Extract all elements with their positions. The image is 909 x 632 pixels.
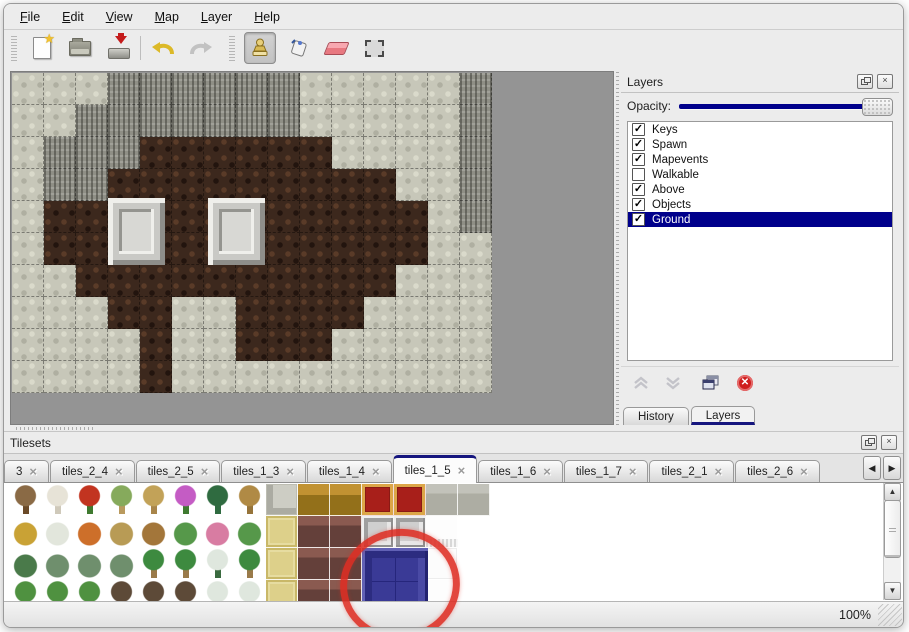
map-tile <box>108 137 140 169</box>
map-tile <box>332 73 364 105</box>
palette-tile-whitebranch[interactable] <box>42 484 74 516</box>
menu-item-file[interactable]: File <box>10 7 50 27</box>
map-tile <box>300 73 332 105</box>
tileset-tab-label: tiles_1_5 <box>405 465 451 477</box>
map-tile <box>268 297 300 329</box>
map-tile <box>12 137 44 169</box>
opacity-slider-groove <box>679 104 889 109</box>
palette-tile-whitefringe[interactable] <box>426 516 458 548</box>
menu-item-map[interactable]: Map <box>145 7 189 27</box>
tileset-scrollbar[interactable]: ▲ ▼ <box>883 483 901 600</box>
layer-list: ✓Keys✓Spawn✓MapeventsWalkable✓Above✓Obje… <box>627 121 893 361</box>
palette-tile-carpet[interactable] <box>362 484 394 516</box>
map-tile <box>300 361 332 393</box>
layer-row-above[interactable]: ✓Above <box>628 182 892 197</box>
close-panel-icon[interactable]: × <box>877 74 893 89</box>
redo-button[interactable] <box>185 32 217 64</box>
map-tile <box>236 169 268 201</box>
close-tab-icon[interactable]: × <box>372 467 380 477</box>
map-tile <box>428 105 460 137</box>
map-tile <box>204 297 236 329</box>
map-tile <box>172 73 204 105</box>
map-tile <box>460 201 492 233</box>
map-tile <box>460 137 492 169</box>
palette-tile-woodmaroon[interactable] <box>330 516 362 548</box>
menu-bar: FileEditViewMapLayerHelp <box>4 4 903 30</box>
map-tile <box>172 297 204 329</box>
map-tile <box>460 73 492 105</box>
map-tile <box>140 265 172 297</box>
map-tile <box>236 297 268 329</box>
map-tile <box>204 329 236 361</box>
new-file-icon: ★ <box>33 37 51 59</box>
toolbar-separator <box>140 36 141 60</box>
map-tile <box>396 73 428 105</box>
map-tile <box>140 297 172 329</box>
map-tile <box>236 73 268 105</box>
close-tab-icon[interactable]: × <box>458 466 466 476</box>
tileset-tab-tiles_1_4[interactable]: tiles_1_4× <box>307 460 392 482</box>
map-tile <box>12 169 44 201</box>
tileset-tab-label: tiles_1_7 <box>576 466 622 478</box>
map-tile <box>396 137 428 169</box>
map-tile <box>76 201 108 233</box>
duplicate-layer-icon[interactable] <box>701 374 721 392</box>
map-tile <box>300 265 332 297</box>
map-tile <box>76 233 108 265</box>
close-tab-icon[interactable]: × <box>286 467 294 477</box>
tileset-tab-label: tiles_2_4 <box>62 466 108 478</box>
map-tile <box>364 73 396 105</box>
map-tile <box>108 297 140 329</box>
layer-checkbox[interactable]: ✓ <box>632 198 645 211</box>
map-tile <box>300 137 332 169</box>
opacity-slider-handle[interactable] <box>862 98 893 116</box>
map-tile <box>332 329 364 361</box>
palette-tile-empty[interactable] <box>458 548 490 580</box>
status-bar: 100% <box>4 601 903 627</box>
delete-layer-icon[interactable]: ✕ <box>737 375 753 391</box>
palette-tile-stonegray[interactable] <box>458 484 490 516</box>
palette-tile-deadtree[interactable] <box>10 484 42 516</box>
map-tile <box>428 265 460 297</box>
palette-tile-snowpine[interactable] <box>202 548 234 580</box>
stamp-tool-button[interactable] <box>244 32 276 64</box>
map-tile <box>396 329 428 361</box>
map-tile <box>44 201 76 233</box>
palette-tile-whitetall[interactable] <box>426 548 458 580</box>
layer-row-ground[interactable]: ✓Ground <box>628 212 892 227</box>
map-tile <box>44 329 76 361</box>
layer-row-mapevents[interactable]: ✓Mapevents <box>628 152 892 167</box>
map-tile <box>236 329 268 361</box>
map-tile <box>460 233 492 265</box>
map-tile <box>204 265 236 297</box>
palette-tile-orangeflower[interactable] <box>74 516 106 548</box>
map-tile <box>396 265 428 297</box>
map-tile <box>172 329 204 361</box>
palette-tile-drygrass[interactable] <box>106 516 138 548</box>
palette-tile-stonepave[interactable] <box>266 484 298 516</box>
save-button[interactable] <box>102 32 134 64</box>
resize-grip[interactable] <box>878 604 902 626</box>
map-tile <box>76 297 108 329</box>
layer-label: Objects <box>652 199 691 211</box>
tileset-tab-label: tiles_1_3 <box>233 466 279 478</box>
layers-dock: Layers × Opacity: ✓Keys✓Spawn✓MapeventsW… <box>621 71 899 425</box>
tileset-tab-label: tiles_2_6 <box>747 466 793 478</box>
map-tile <box>204 169 236 201</box>
map-tile <box>172 137 204 169</box>
dock-tab-layers[interactable]: Layers <box>691 406 756 425</box>
map-tile <box>76 361 108 393</box>
palette-tile-redflower[interactable] <box>74 484 106 516</box>
palette-tile-palm[interactable] <box>170 548 202 580</box>
palette-tile-silver[interactable] <box>394 516 426 548</box>
map-tile <box>108 329 140 361</box>
map-tile <box>268 169 300 201</box>
tileset-tab-label: tiles_1_6 <box>490 466 536 478</box>
close-tab-icon[interactable]: × <box>115 467 123 477</box>
tileset-tab-bar: 3×tiles_2_4×tiles_2_5×tiles_1_3×tiles_1_… <box>4 454 903 483</box>
palette-tile-fern[interactable] <box>202 484 234 516</box>
tileset-tab-tiles_1_6[interactable]: tiles_1_6× <box>478 460 563 482</box>
palette-tile-hay[interactable] <box>10 516 42 548</box>
map-tile <box>140 361 172 393</box>
layer-label: Walkable <box>652 169 699 181</box>
tab-scroll-buttons: ◀▶ <box>863 456 903 482</box>
map-tile <box>428 361 460 393</box>
map-tile <box>460 297 492 329</box>
tilesets-title: Tilesets <box>10 436 857 450</box>
dock-tabs: HistoryLayers <box>621 399 899 425</box>
palette-tile-silver[interactable] <box>362 516 394 548</box>
map-tile <box>76 73 108 105</box>
map-tile <box>396 361 428 393</box>
close-tab-icon[interactable]: × <box>715 467 723 477</box>
tileset-tab-label: tiles_2_1 <box>661 466 707 478</box>
map-tile <box>140 169 172 201</box>
map-tile <box>268 233 300 265</box>
map-tile <box>332 233 364 265</box>
map-tile <box>172 105 204 137</box>
tileset-tab-label: tiles_1_4 <box>319 466 365 478</box>
map-tile <box>236 265 268 297</box>
map-tile <box>364 169 396 201</box>
map-tile <box>12 201 44 233</box>
palette-tile-woodgold[interactable] <box>298 484 330 516</box>
map-tile <box>332 137 364 169</box>
map-tile <box>460 169 492 201</box>
scrollbar-thumb[interactable] <box>884 500 901 558</box>
tileset-tab-tiles_1_7[interactable]: tiles_1_7× <box>564 460 649 482</box>
scroll-up-icon[interactable]: ▲ <box>884 483 901 501</box>
layer-checkbox[interactable] <box>632 168 645 181</box>
move-layer-down-icon[interactable] <box>663 375 683 391</box>
map-tile <box>44 137 76 169</box>
map-tile <box>12 73 44 105</box>
map-tile <box>12 329 44 361</box>
palette-tile-brownplant[interactable] <box>234 484 266 516</box>
map-tile <box>428 201 460 233</box>
pedestal-tile <box>208 198 265 265</box>
layer-row-keys[interactable]: ✓Keys <box>628 122 892 137</box>
layer-checkbox[interactable]: ✓ <box>632 153 645 166</box>
layer-row-objects[interactable]: ✓Objects <box>628 197 892 212</box>
layer-row-walkable[interactable]: Walkable <box>628 167 892 182</box>
eraser-tool-button[interactable] <box>320 32 352 64</box>
map-tile <box>428 73 460 105</box>
map-canvas[interactable] <box>10 71 614 425</box>
menu-item-help[interactable]: Help <box>244 7 290 27</box>
undo-icon <box>151 39 175 57</box>
map-tile <box>44 265 76 297</box>
map-tile <box>236 361 268 393</box>
map-tile <box>76 137 108 169</box>
map-tile <box>396 105 428 137</box>
map-tile <box>300 169 332 201</box>
map-tile <box>332 169 364 201</box>
map-tile <box>76 169 108 201</box>
map-tile <box>268 105 300 137</box>
close-tab-icon[interactable]: × <box>29 467 37 477</box>
move-layer-up-icon[interactable] <box>631 375 651 391</box>
map-tile <box>140 329 172 361</box>
layer-checkbox[interactable]: ✓ <box>632 123 645 136</box>
palette-tile-woodgold[interactable] <box>330 484 362 516</box>
palette-tile-purpleflower[interactable] <box>170 484 202 516</box>
map-tile <box>300 105 332 137</box>
map-tile <box>396 233 428 265</box>
layer-label: Mapevents <box>652 154 708 166</box>
tileset-tab-tiles_2_6[interactable]: tiles_2_6× <box>735 460 820 482</box>
map-tile <box>12 265 44 297</box>
map-tile <box>44 361 76 393</box>
map-tile <box>172 169 204 201</box>
map-tile <box>76 329 108 361</box>
toolbar-drag-handle-2[interactable] <box>229 35 235 61</box>
map-tile <box>12 233 44 265</box>
map-tile <box>332 361 364 393</box>
map-tile <box>12 105 44 137</box>
palette-tile-carpet[interactable] <box>394 484 426 516</box>
toolbar: ★ <box>4 30 903 66</box>
map-tile <box>44 105 76 137</box>
map-tile <box>108 265 140 297</box>
app-window: FileEditViewMapLayerHelp ★ <box>3 3 904 628</box>
tileset-tab-3[interactable]: 3× <box>4 460 49 482</box>
palette-tile-palm[interactable] <box>138 548 170 580</box>
open-button[interactable] <box>64 32 96 64</box>
map-tile <box>108 105 140 137</box>
palette-tile-leaves[interactable] <box>138 516 170 548</box>
map-tile <box>396 169 428 201</box>
map-tile <box>364 233 396 265</box>
palette-tile-trunk[interactable] <box>138 484 170 516</box>
map-tile <box>268 137 300 169</box>
tileset-tab-tiles_2_1[interactable]: tiles_2_1× <box>649 460 734 482</box>
map-tile <box>268 265 300 297</box>
tileset-tab-label: tiles_2_5 <box>148 466 194 478</box>
float-panel-icon[interactable] <box>861 435 877 450</box>
map-tile <box>332 201 364 233</box>
map-tile <box>396 297 428 329</box>
close-tab-icon[interactable]: × <box>201 467 209 477</box>
palette-tile-sprigs[interactable] <box>10 548 42 580</box>
stamp-tool-icon <box>250 38 270 58</box>
map-tile <box>44 233 76 265</box>
map-tile <box>172 233 204 265</box>
palette-tile-bush[interactable] <box>74 548 106 580</box>
layer-checkbox[interactable]: ✓ <box>632 213 645 226</box>
select-tool-button[interactable] <box>358 32 390 64</box>
layer-checkbox[interactable]: ✓ <box>632 138 645 151</box>
open-folder-icon <box>69 41 91 56</box>
fill-bucket-icon <box>287 37 309 59</box>
menu-item-view[interactable]: View <box>96 7 143 27</box>
palette-tile-stonegray[interactable] <box>426 484 458 516</box>
palette-tile-woodmaroon[interactable] <box>330 548 362 580</box>
map-tile <box>76 105 108 137</box>
map-tile <box>364 137 396 169</box>
map-tile <box>300 329 332 361</box>
map-tile <box>236 105 268 137</box>
close-tab-icon[interactable]: × <box>629 467 637 477</box>
scroll-down-icon[interactable]: ▼ <box>884 582 901 600</box>
map-tile <box>460 265 492 297</box>
tilesets-titlebar: Tilesets × <box>4 432 903 454</box>
float-panel-icon[interactable] <box>857 74 873 89</box>
map-tile <box>236 137 268 169</box>
map-tile <box>140 105 172 137</box>
opacity-slider[interactable] <box>679 98 893 115</box>
tilesets-dock: Tilesets × 3×tiles_2_4×tiles_2_5×tiles_1… <box>4 431 903 601</box>
map-tile <box>108 73 140 105</box>
map-tile <box>108 169 140 201</box>
map-tile <box>204 361 236 393</box>
palette-tile-mattan[interactable] <box>266 516 298 548</box>
map-tile <box>364 265 396 297</box>
map-tile <box>364 297 396 329</box>
map-tile <box>460 361 492 393</box>
map-tile <box>300 201 332 233</box>
tileset-content: ▲ ▼ <box>4 483 903 601</box>
menu-item-edit[interactable]: Edit <box>52 7 94 27</box>
map-tile <box>300 297 332 329</box>
fill-tool-button[interactable] <box>282 32 314 64</box>
main-area: Layers × Opacity: ✓Keys✓Spawn✓MapeventsW… <box>4 66 903 425</box>
palette-tile-woodmaroon[interactable] <box>298 548 330 580</box>
new-file-button[interactable]: ★ <box>26 32 58 64</box>
scroll-tabs-left-icon[interactable]: ◀ <box>863 456 881 480</box>
dock-tab-history[interactable]: History <box>623 407 689 425</box>
opacity-label: Opacity: <box>627 99 671 113</box>
map-tile <box>172 265 204 297</box>
map-tile <box>460 105 492 137</box>
layers-dock-title: Layers <box>627 75 853 89</box>
map-tile <box>108 361 140 393</box>
map-tile <box>204 73 236 105</box>
palette-tile-lilypad[interactable] <box>234 516 266 548</box>
palette-tile-snowmound[interactable] <box>42 516 74 548</box>
toolbar-drag-handle[interactable] <box>11 35 17 61</box>
map-tile <box>44 169 76 201</box>
tileset-tab-tiles_1_5[interactable]: tiles_1_5× <box>393 455 478 483</box>
map-tile <box>364 201 396 233</box>
map-tile <box>12 361 44 393</box>
layer-label: Spawn <box>652 139 687 151</box>
map-tile <box>364 329 396 361</box>
tileset-tab-label: 3 <box>16 466 22 478</box>
select-rect-icon <box>365 40 384 57</box>
map-tile <box>268 361 300 393</box>
map-tile <box>300 233 332 265</box>
map-tile <box>460 329 492 361</box>
tileset-tab-tiles_2_5[interactable]: tiles_2_5× <box>136 460 221 482</box>
map-tile <box>428 169 460 201</box>
map-tile <box>268 329 300 361</box>
map-tile <box>12 297 44 329</box>
map-tile <box>140 137 172 169</box>
palette-tile-mattan[interactable] <box>266 548 298 580</box>
undo-button[interactable] <box>147 32 179 64</box>
map-tile <box>44 73 76 105</box>
map-tile <box>332 265 364 297</box>
close-panel-icon[interactable]: × <box>881 435 897 450</box>
scroll-tabs-right-icon[interactable]: ▶ <box>883 456 901 480</box>
palette-tile-woodmaroon[interactable] <box>298 516 330 548</box>
zoom-level: 100% <box>839 608 871 622</box>
map-tile <box>268 201 300 233</box>
vertical-splitter[interactable] <box>614 71 621 425</box>
map-tile <box>428 233 460 265</box>
map-tile <box>44 297 76 329</box>
map-tile <box>332 105 364 137</box>
palette-tile-bush[interactable] <box>42 548 74 580</box>
map-tile <box>364 105 396 137</box>
layer-checkbox[interactable]: ✓ <box>632 183 645 196</box>
map-tile <box>428 137 460 169</box>
close-tab-icon[interactable]: × <box>543 467 551 477</box>
map-tile <box>428 297 460 329</box>
tileset-tab-tiles_2_4[interactable]: tiles_2_4× <box>50 460 135 482</box>
layer-label: Ground <box>652 214 690 226</box>
map-tile <box>396 201 428 233</box>
map-tile <box>172 201 204 233</box>
layer-row-spawn[interactable]: ✓Spawn <box>628 137 892 152</box>
opacity-row: Opacity: <box>621 93 899 119</box>
palette-tile-empty[interactable] <box>458 516 490 548</box>
palette-tile-stump[interactable] <box>106 484 138 516</box>
palette-tile-lilypad[interactable] <box>170 516 202 548</box>
map-tile <box>204 105 236 137</box>
palette-tile-pinkflower[interactable] <box>202 516 234 548</box>
close-tab-icon[interactable]: × <box>800 467 808 477</box>
redo-icon <box>189 39 213 57</box>
palette-tile-palm[interactable] <box>234 548 266 580</box>
map-tile <box>204 137 236 169</box>
map-tile <box>76 265 108 297</box>
map-tile <box>268 73 300 105</box>
tileset-tab-tiles_1_3[interactable]: tiles_1_3× <box>221 460 306 482</box>
layer-buttons: ✕ <box>621 366 899 399</box>
layer-label: Keys <box>652 124 678 136</box>
map-tile <box>428 329 460 361</box>
palette-tile-bush[interactable] <box>106 548 138 580</box>
layer-label: Above <box>652 184 685 196</box>
eraser-icon <box>323 42 349 55</box>
menu-item-layer[interactable]: Layer <box>191 7 242 27</box>
